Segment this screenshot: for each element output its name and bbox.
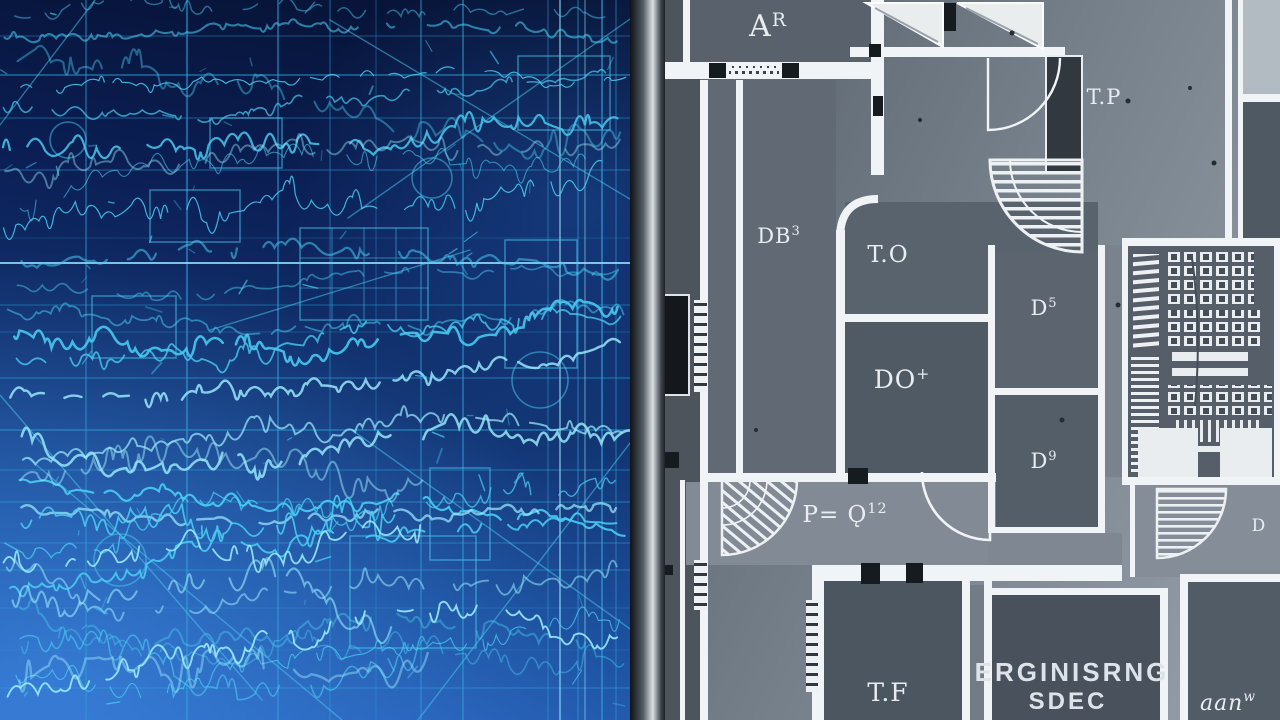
- blueprint-scribbles-drawing: [0, 0, 630, 720]
- floorplan-panel: AR T.P DB3 T.O DO+ D5 D9 P= Ǫ12 T.F D aa…: [665, 0, 1280, 720]
- floorplan-drawing: AR T.P DB3 T.O DO+ D5 D9 P= Ǫ12 T.F D aa…: [665, 0, 1280, 720]
- spec-room-label-line2: SDEC: [1029, 688, 1108, 715]
- room-label-to: T.O: [867, 242, 908, 268]
- room-label-tf: T.F: [867, 678, 908, 707]
- spec-room-label-line1: ERGINISRNG: [975, 657, 1170, 687]
- panel-divider: [630, 0, 665, 720]
- door-symbols: [866, 3, 1082, 172]
- split-technical-illustration: AR T.P DB3 T.O DO+ D5 D9 P= Ǫ12 T.F D aa…: [0, 0, 1280, 720]
- blueprint-math-panel: [0, 0, 630, 720]
- room-label-tp: T.P: [1087, 85, 1122, 109]
- room-label-d: D: [1252, 516, 1267, 536]
